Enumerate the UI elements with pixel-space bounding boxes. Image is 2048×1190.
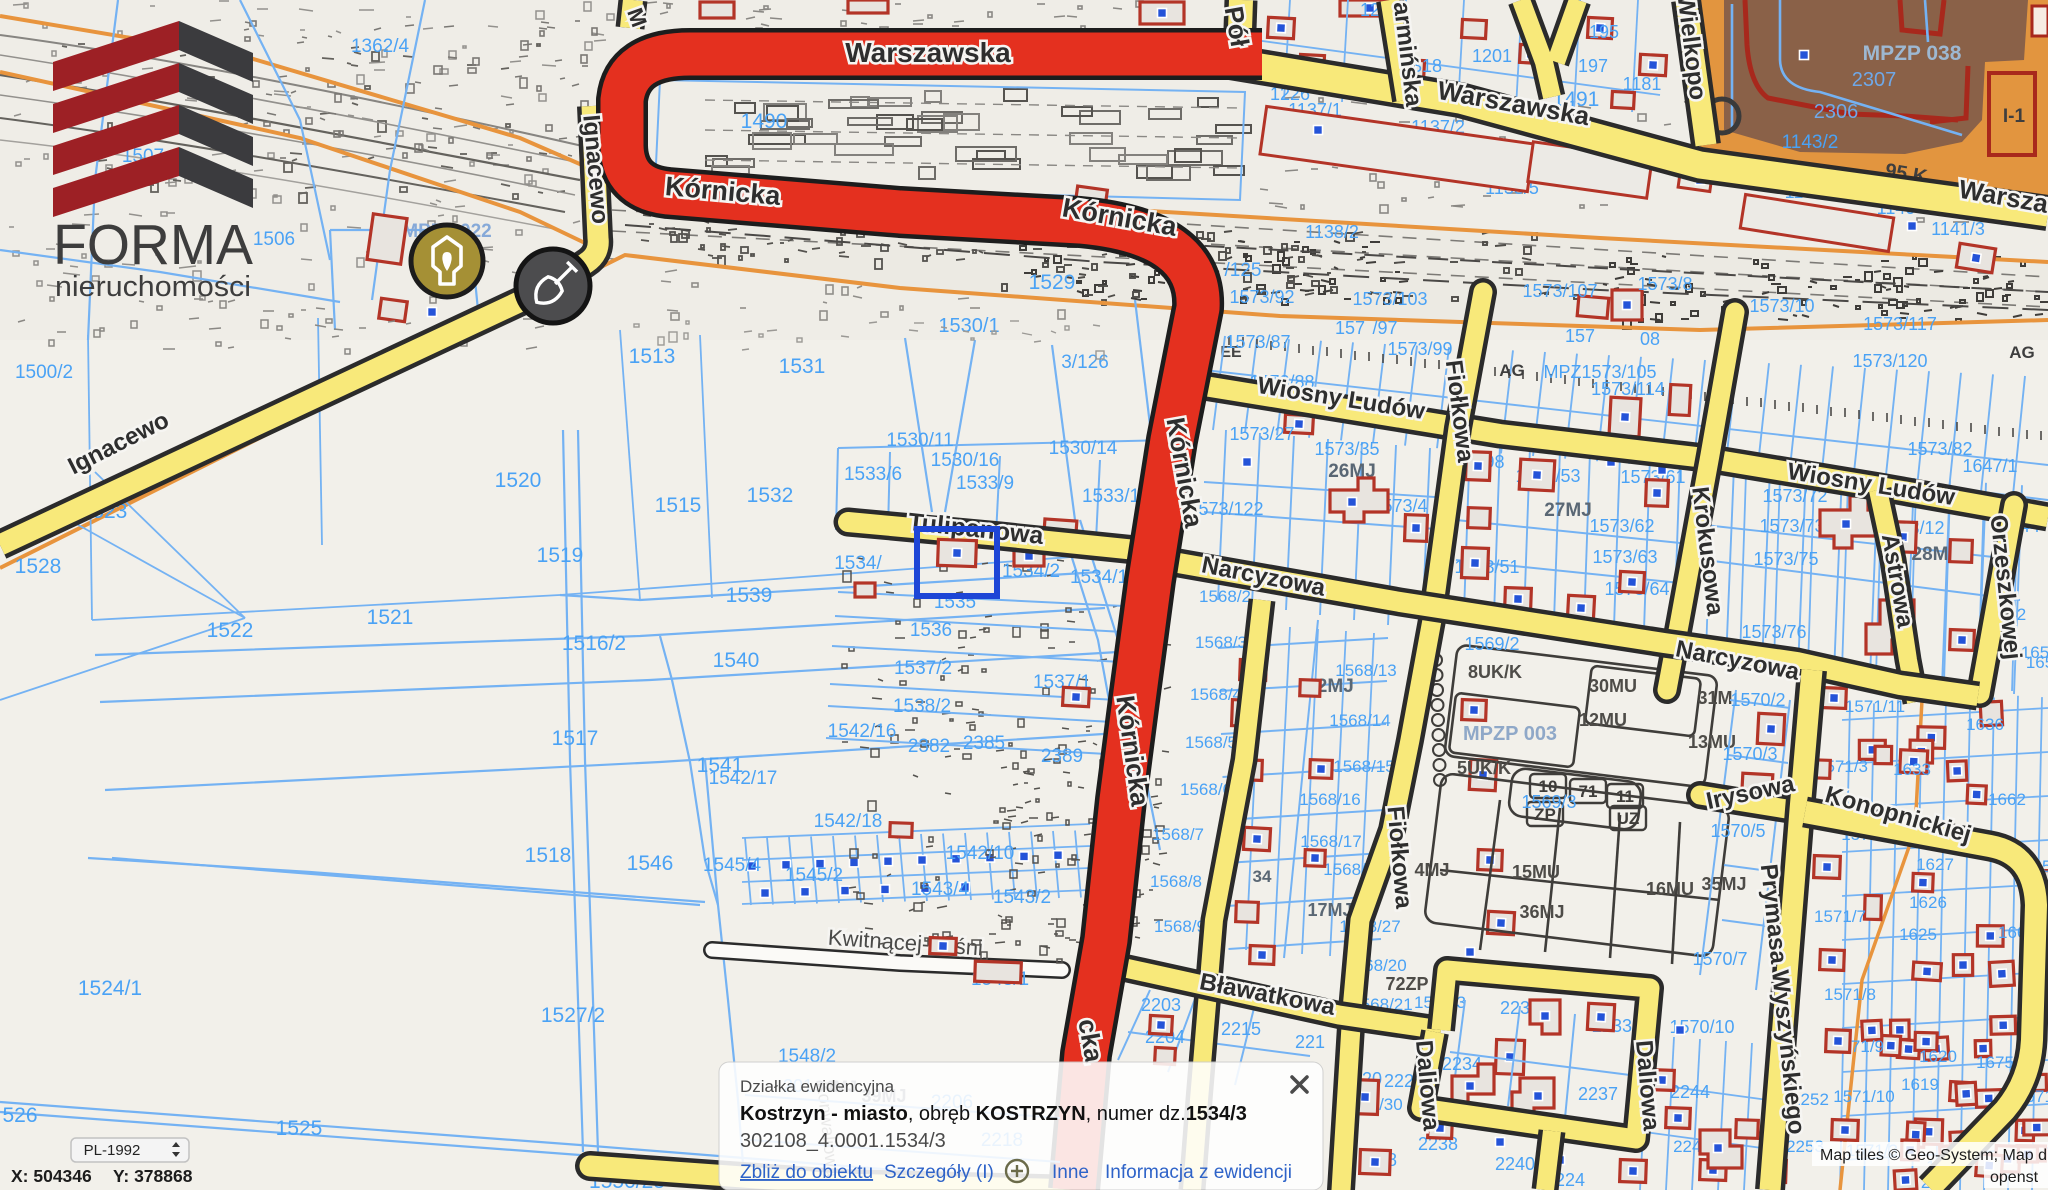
- svg-text:1568/15: 1568/15: [1333, 757, 1394, 776]
- svg-text:2385: 2385: [963, 733, 1005, 754]
- svg-text:1500/2: 1500/2: [15, 362, 73, 383]
- svg-text:1530/1: 1530/1: [938, 315, 999, 337]
- svg-text:5UK/K: 5UK/K: [1457, 758, 1511, 778]
- svg-text:30MU: 30MU: [1589, 676, 1637, 696]
- svg-text:1539: 1539: [726, 584, 773, 607]
- svg-text:1570/3: 1570/3: [1722, 744, 1777, 764]
- svg-text:157: 157: [1335, 318, 1365, 338]
- svg-text:1530/16: 1530/16: [931, 450, 1000, 471]
- svg-text:1571/11: 1571/11: [1845, 697, 1905, 716]
- svg-text:1138/2: 1138/2: [1305, 222, 1359, 242]
- svg-text:1201: 1201: [1472, 46, 1512, 66]
- svg-text:1573/8: 1573/8: [1637, 274, 1692, 294]
- svg-text:2215: 2215: [1221, 1019, 1261, 1039]
- svg-text:1533/6: 1533/6: [844, 464, 902, 485]
- svg-text:Szczegóły (I): Szczegóły (I): [884, 1162, 994, 1183]
- svg-text:1573/87: 1573/87: [1225, 332, 1290, 352]
- svg-text:AG: AG: [1499, 361, 1525, 380]
- svg-text:1528: 1528: [15, 555, 62, 578]
- svg-text:36MJ: 36MJ: [1519, 902, 1564, 922]
- svg-text:1543/2: 1543/2: [993, 887, 1051, 908]
- svg-text:72ZP: 72ZP: [1385, 974, 1428, 994]
- svg-text:1573/120: 1573/120: [1852, 351, 1927, 371]
- svg-text:1573/117: 1573/117: [1863, 314, 1937, 334]
- svg-text:17MJ: 17MJ: [1307, 900, 1352, 920]
- svg-text:1620: 1620: [1919, 1047, 1957, 1066]
- svg-text:1571/7: 1571/7: [1814, 907, 1866, 926]
- svg-text:31M: 31M: [1697, 688, 1732, 708]
- svg-text:2306: 2306: [1814, 101, 1859, 123]
- svg-text:1568/5: 1568/5: [1185, 733, 1237, 752]
- svg-text:195: 195: [1589, 22, 1619, 42]
- svg-text:Działka ewidencyjna: Działka ewidencyjna: [740, 1077, 895, 1096]
- svg-text:Zbliż do obiektu: Zbliż do obiektu: [740, 1162, 873, 1183]
- svg-text:4MJ: 4MJ: [1414, 860, 1449, 880]
- svg-text:1571/8: 1571/8: [1824, 985, 1876, 1004]
- svg-text:1532: 1532: [747, 484, 794, 507]
- svg-text:1633: 1633: [1893, 760, 1931, 779]
- svg-text:1490: 1490: [741, 110, 788, 133]
- svg-text:1530/11: 1530/11: [886, 430, 953, 451]
- svg-text:1529: 1529: [1029, 271, 1076, 294]
- svg-text:1573/92: 1573/92: [1229, 287, 1294, 307]
- svg-text:1568/9: 1568/9: [1154, 917, 1206, 936]
- svg-text:1569/2: 1569/2: [1464, 634, 1519, 654]
- svg-text:1513: 1513: [629, 345, 676, 368]
- svg-text:1520: 1520: [495, 469, 542, 492]
- svg-text:221: 221: [1295, 1032, 1325, 1052]
- svg-text:1545/4: 1545/4: [703, 855, 762, 876]
- svg-text:1542/17: 1542/17: [709, 768, 778, 789]
- svg-text:27MJ: 27MJ: [1544, 500, 1592, 521]
- svg-text:1543/4: 1543/4: [911, 879, 970, 900]
- svg-text:Inne: Inne: [1052, 1162, 1089, 1183]
- svg-text:PL-1992: PL-1992: [84, 1142, 141, 1159]
- svg-text:1519: 1519: [537, 544, 584, 567]
- svg-text:1662: 1662: [1988, 790, 2026, 809]
- svg-text:1626: 1626: [1909, 893, 1947, 912]
- svg-text:1573/103: 1573/103: [1352, 289, 1427, 309]
- svg-text:3/126: 3/126: [1061, 352, 1109, 373]
- svg-text:165: 165: [2026, 653, 2048, 672]
- svg-text:34: 34: [1253, 867, 1272, 886]
- svg-text:1534/1: 1534/1: [1070, 567, 1128, 588]
- svg-text:1516/2: 1516/2: [562, 632, 626, 655]
- svg-text:71: 71: [1579, 782, 1598, 801]
- svg-text:1573/62: 1573/62: [1589, 516, 1654, 536]
- svg-text:1568/7: 1568/7: [1152, 825, 1204, 844]
- svg-text:2307: 2307: [1852, 69, 1897, 91]
- svg-text:1518: 1518: [525, 844, 572, 867]
- svg-text:1573/63: 1573/63: [1592, 547, 1657, 567]
- svg-text:2244: 2244: [1670, 1082, 1710, 1102]
- svg-text:FORMA: FORMA: [53, 213, 253, 277]
- svg-text:1542/16: 1542/16: [828, 721, 897, 742]
- svg-text:16MU: 16MU: [1646, 879, 1694, 899]
- svg-text:1573/99: 1573/99: [1387, 339, 1452, 359]
- svg-text:/97: /97: [1372, 318, 1397, 338]
- svg-text:1181: 1181: [1623, 74, 1662, 94]
- svg-text:1568/17: 1568/17: [1300, 832, 1361, 851]
- svg-text:1533/9: 1533/9: [956, 473, 1014, 494]
- svg-text:1538/2: 1538/2: [893, 696, 951, 717]
- svg-text:Informacja z ewidencji: Informacja z ewidencji: [1105, 1162, 1292, 1183]
- svg-text:1141/3: 1141/3: [1931, 219, 1985, 239]
- svg-text:2237: 2237: [1578, 1084, 1618, 1104]
- svg-text:1521: 1521: [367, 606, 414, 629]
- svg-text:1536: 1536: [910, 620, 952, 641]
- svg-text:1525: 1525: [276, 1117, 323, 1140]
- svg-text:1540: 1540: [713, 649, 760, 672]
- svg-text:1573/114: 1573/114: [1591, 379, 1665, 399]
- svg-text:1546: 1546: [627, 852, 674, 875]
- svg-text:1522: 1522: [207, 619, 254, 642]
- svg-text:1506: 1506: [253, 229, 295, 250]
- svg-text:157: 157: [1565, 326, 1595, 346]
- svg-text:1533/1: 1533/1: [1082, 486, 1140, 507]
- svg-text:1636: 1636: [1966, 715, 2004, 734]
- svg-text:1619: 1619: [1901, 1075, 1939, 1094]
- svg-text:nieruchomości: nieruchomości: [55, 271, 251, 303]
- svg-text:11: 11: [1616, 787, 1634, 806]
- svg-text:1517: 1517: [552, 727, 599, 750]
- svg-text:AG: AG: [2009, 343, 2035, 362]
- svg-text:1573/75: 1573/75: [1753, 549, 1818, 569]
- svg-text:15MU: 15MU: [1512, 862, 1560, 882]
- svg-text:1625: 1625: [1899, 925, 1937, 944]
- svg-text:2382: 2382: [908, 736, 950, 757]
- svg-text:1527/2: 1527/2: [541, 1004, 605, 1027]
- svg-text:openst: openst: [1990, 1169, 2039, 1186]
- svg-text:1531: 1531: [779, 355, 826, 378]
- svg-text:197: 197: [1578, 56, 1608, 76]
- svg-text:2389: 2389: [1041, 746, 1083, 767]
- svg-text:Map tiles © Geo-System; Map d: Map tiles © Geo-System; Map d: [1820, 1147, 2047, 1164]
- svg-text:2203: 2203: [1141, 995, 1181, 1015]
- svg-text:1627: 1627: [1916, 855, 1954, 874]
- svg-text:1570/2: 1570/2: [1730, 690, 1785, 710]
- svg-text:1515: 1515: [655, 494, 702, 517]
- svg-text:1647/1: 1647/1: [1962, 456, 2017, 476]
- svg-text:1675: 1675: [1976, 1053, 2014, 1072]
- svg-text:Kostrzyn - miasto, obręb KOSTR: Kostrzyn - miasto, obręb KOSTRZYN, numer…: [740, 1103, 1247, 1125]
- svg-text:08: 08: [1640, 329, 1660, 349]
- svg-text:1545/2: 1545/2: [785, 865, 843, 886]
- svg-text:8UK/K: 8UK/K: [1468, 662, 1522, 682]
- svg-text:1568/14: 1568/14: [1329, 711, 1390, 730]
- svg-text:MPZP 038: MPZP 038: [1863, 42, 1962, 65]
- svg-text:MPZP 003: MPZP 003: [1463, 723, 1557, 745]
- svg-text:1570/7: 1570/7: [1692, 949, 1747, 969]
- svg-text:1568/16: 1568/16: [1299, 790, 1360, 809]
- svg-text:12MU: 12MU: [1579, 710, 1627, 730]
- svg-text:1534/: 1534/: [834, 553, 882, 574]
- svg-text:302108_4.0001.1534/3: 302108_4.0001.1534/3: [740, 1130, 946, 1152]
- svg-text:1542/18: 1542/18: [814, 811, 883, 832]
- svg-text:1573/27: 1573/27: [1229, 424, 1294, 444]
- svg-text:1573/107: 1573/107: [1522, 281, 1597, 301]
- svg-text:1571/10: 1571/10: [1833, 1087, 1894, 1106]
- svg-text:/125: /125: [1225, 260, 1262, 281]
- svg-text:1362/4: 1362/4: [351, 36, 410, 57]
- svg-text:1542/10: 1542/10: [946, 843, 1015, 864]
- svg-text:1570/5: 1570/5: [1710, 821, 1765, 841]
- svg-text:X: 504346: X: 504346: [11, 1166, 92, 1186]
- svg-text:1573/35: 1573/35: [1314, 439, 1379, 459]
- svg-text:1573/10: 1573/10: [1749, 296, 1814, 316]
- svg-text:1573/73: 1573/73: [1759, 516, 1824, 536]
- svg-text:2240: 2240: [1495, 1154, 1535, 1174]
- svg-text:Y: 378868: Y: 378868: [113, 1166, 193, 1186]
- svg-text:1524/1: 1524/1: [78, 977, 142, 1000]
- svg-text:35MJ: 35MJ: [1701, 874, 1746, 894]
- svg-text:I-1: I-1: [2003, 106, 2026, 127]
- svg-text:2234: 2234: [1442, 1054, 1482, 1074]
- svg-text:1568/2: 1568/2: [1199, 587, 1251, 606]
- svg-text:1143/2: 1143/2: [1782, 132, 1839, 153]
- svg-text:1537/2: 1537/2: [894, 658, 952, 679]
- svg-text:1573/76: 1573/76: [1741, 622, 1806, 642]
- svg-text:Warszawska: Warszawska: [845, 37, 1011, 68]
- svg-text:UZ: UZ: [1617, 809, 1640, 828]
- svg-text:1568/8: 1568/8: [1150, 872, 1202, 891]
- svg-text:526: 526: [2, 1104, 37, 1127]
- svg-text:1568/3: 1568/3: [1195, 633, 1247, 652]
- svg-text:1530/14: 1530/14: [1049, 438, 1118, 459]
- svg-text:1569/3: 1569/3: [1521, 792, 1576, 812]
